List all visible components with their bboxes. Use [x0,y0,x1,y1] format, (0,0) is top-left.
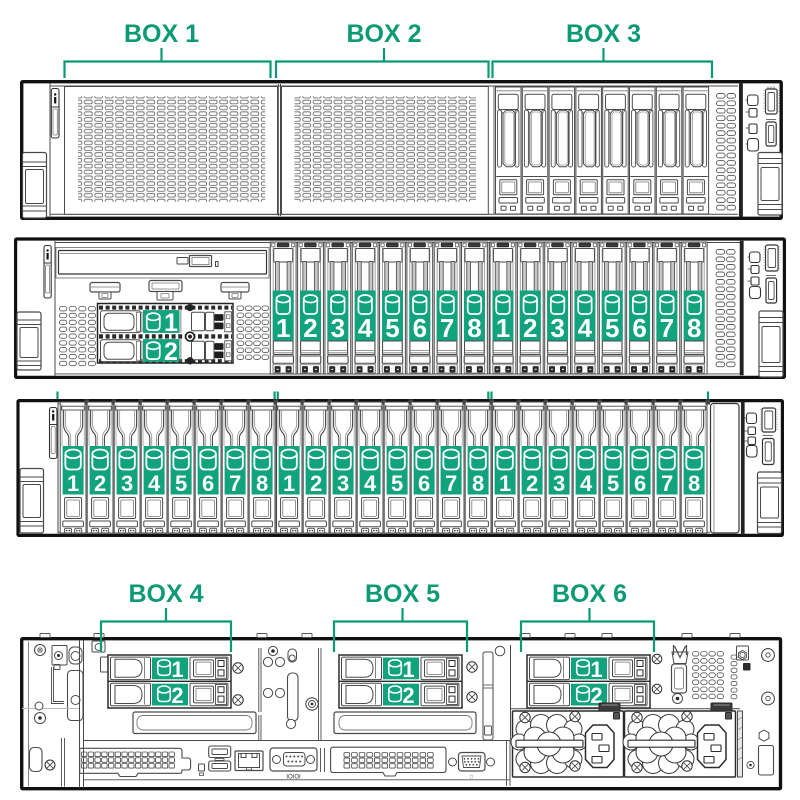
svg-text:2: 2 [171,683,183,708]
svg-text:3: 3 [553,471,565,496]
svg-text:5: 5 [175,471,187,496]
svg-text:6: 6 [413,313,427,343]
svg-text:4: 4 [580,471,593,496]
svg-text:2: 2 [402,683,414,708]
svg-text:5: 5 [607,471,619,496]
svg-text:8: 8 [256,471,268,496]
svg-text:4: 4 [148,471,161,496]
svg-text:2: 2 [303,313,317,343]
svg-text:5: 5 [391,471,403,496]
svg-text:8: 8 [467,313,481,343]
svg-text:BOX 5: BOX 5 [365,580,440,608]
svg-text:8: 8 [687,313,701,343]
svg-text:5: 5 [385,313,399,343]
svg-text:6: 6 [418,471,430,496]
svg-text:BOX 4: BOX 4 [128,580,203,608]
svg-text:5: 5 [605,313,619,343]
svg-text:4: 4 [358,313,373,343]
svg-text:7: 7 [661,471,673,496]
svg-text:4: 4 [578,313,593,343]
svg-text:1: 1 [276,313,290,343]
svg-text:1: 1 [171,657,183,682]
svg-text:6: 6 [634,471,646,496]
svg-text:□: □ [470,775,473,781]
svg-text:2: 2 [523,313,537,343]
svg-text:1: 1 [496,313,510,343]
svg-text:1: 1 [67,471,79,496]
svg-text:7: 7 [229,471,241,496]
svg-text:2: 2 [164,338,178,366]
svg-text:BOX 2: BOX 2 [346,20,421,48]
svg-text:2: 2 [310,471,322,496]
svg-text:6: 6 [632,313,646,343]
svg-text:1: 1 [283,471,295,496]
svg-text:BOX 6: BOX 6 [552,580,627,608]
svg-text:2: 2 [94,471,106,496]
svg-text:1: 1 [164,309,178,337]
svg-text:7: 7 [445,471,457,496]
svg-text:1: 1 [499,471,511,496]
svg-text:3: 3 [331,313,345,343]
svg-text:BOX 1: BOX 1 [124,20,199,48]
svg-text:4: 4 [364,471,377,496]
svg-text:2: 2 [526,471,538,496]
svg-text:6: 6 [202,471,214,496]
svg-text:1: 1 [402,657,414,682]
svg-text:7: 7 [440,313,454,343]
svg-text:7: 7 [660,313,674,343]
svg-text:8: 8 [472,471,484,496]
svg-text:IOIOI: IOIOI [286,775,301,781]
svg-text:3: 3 [550,313,564,343]
svg-text:BOX 3: BOX 3 [566,20,641,48]
svg-text:3: 3 [337,471,349,496]
svg-text:3: 3 [121,471,133,496]
svg-text:1: 1 [590,657,602,682]
svg-text:8: 8 [688,471,700,496]
